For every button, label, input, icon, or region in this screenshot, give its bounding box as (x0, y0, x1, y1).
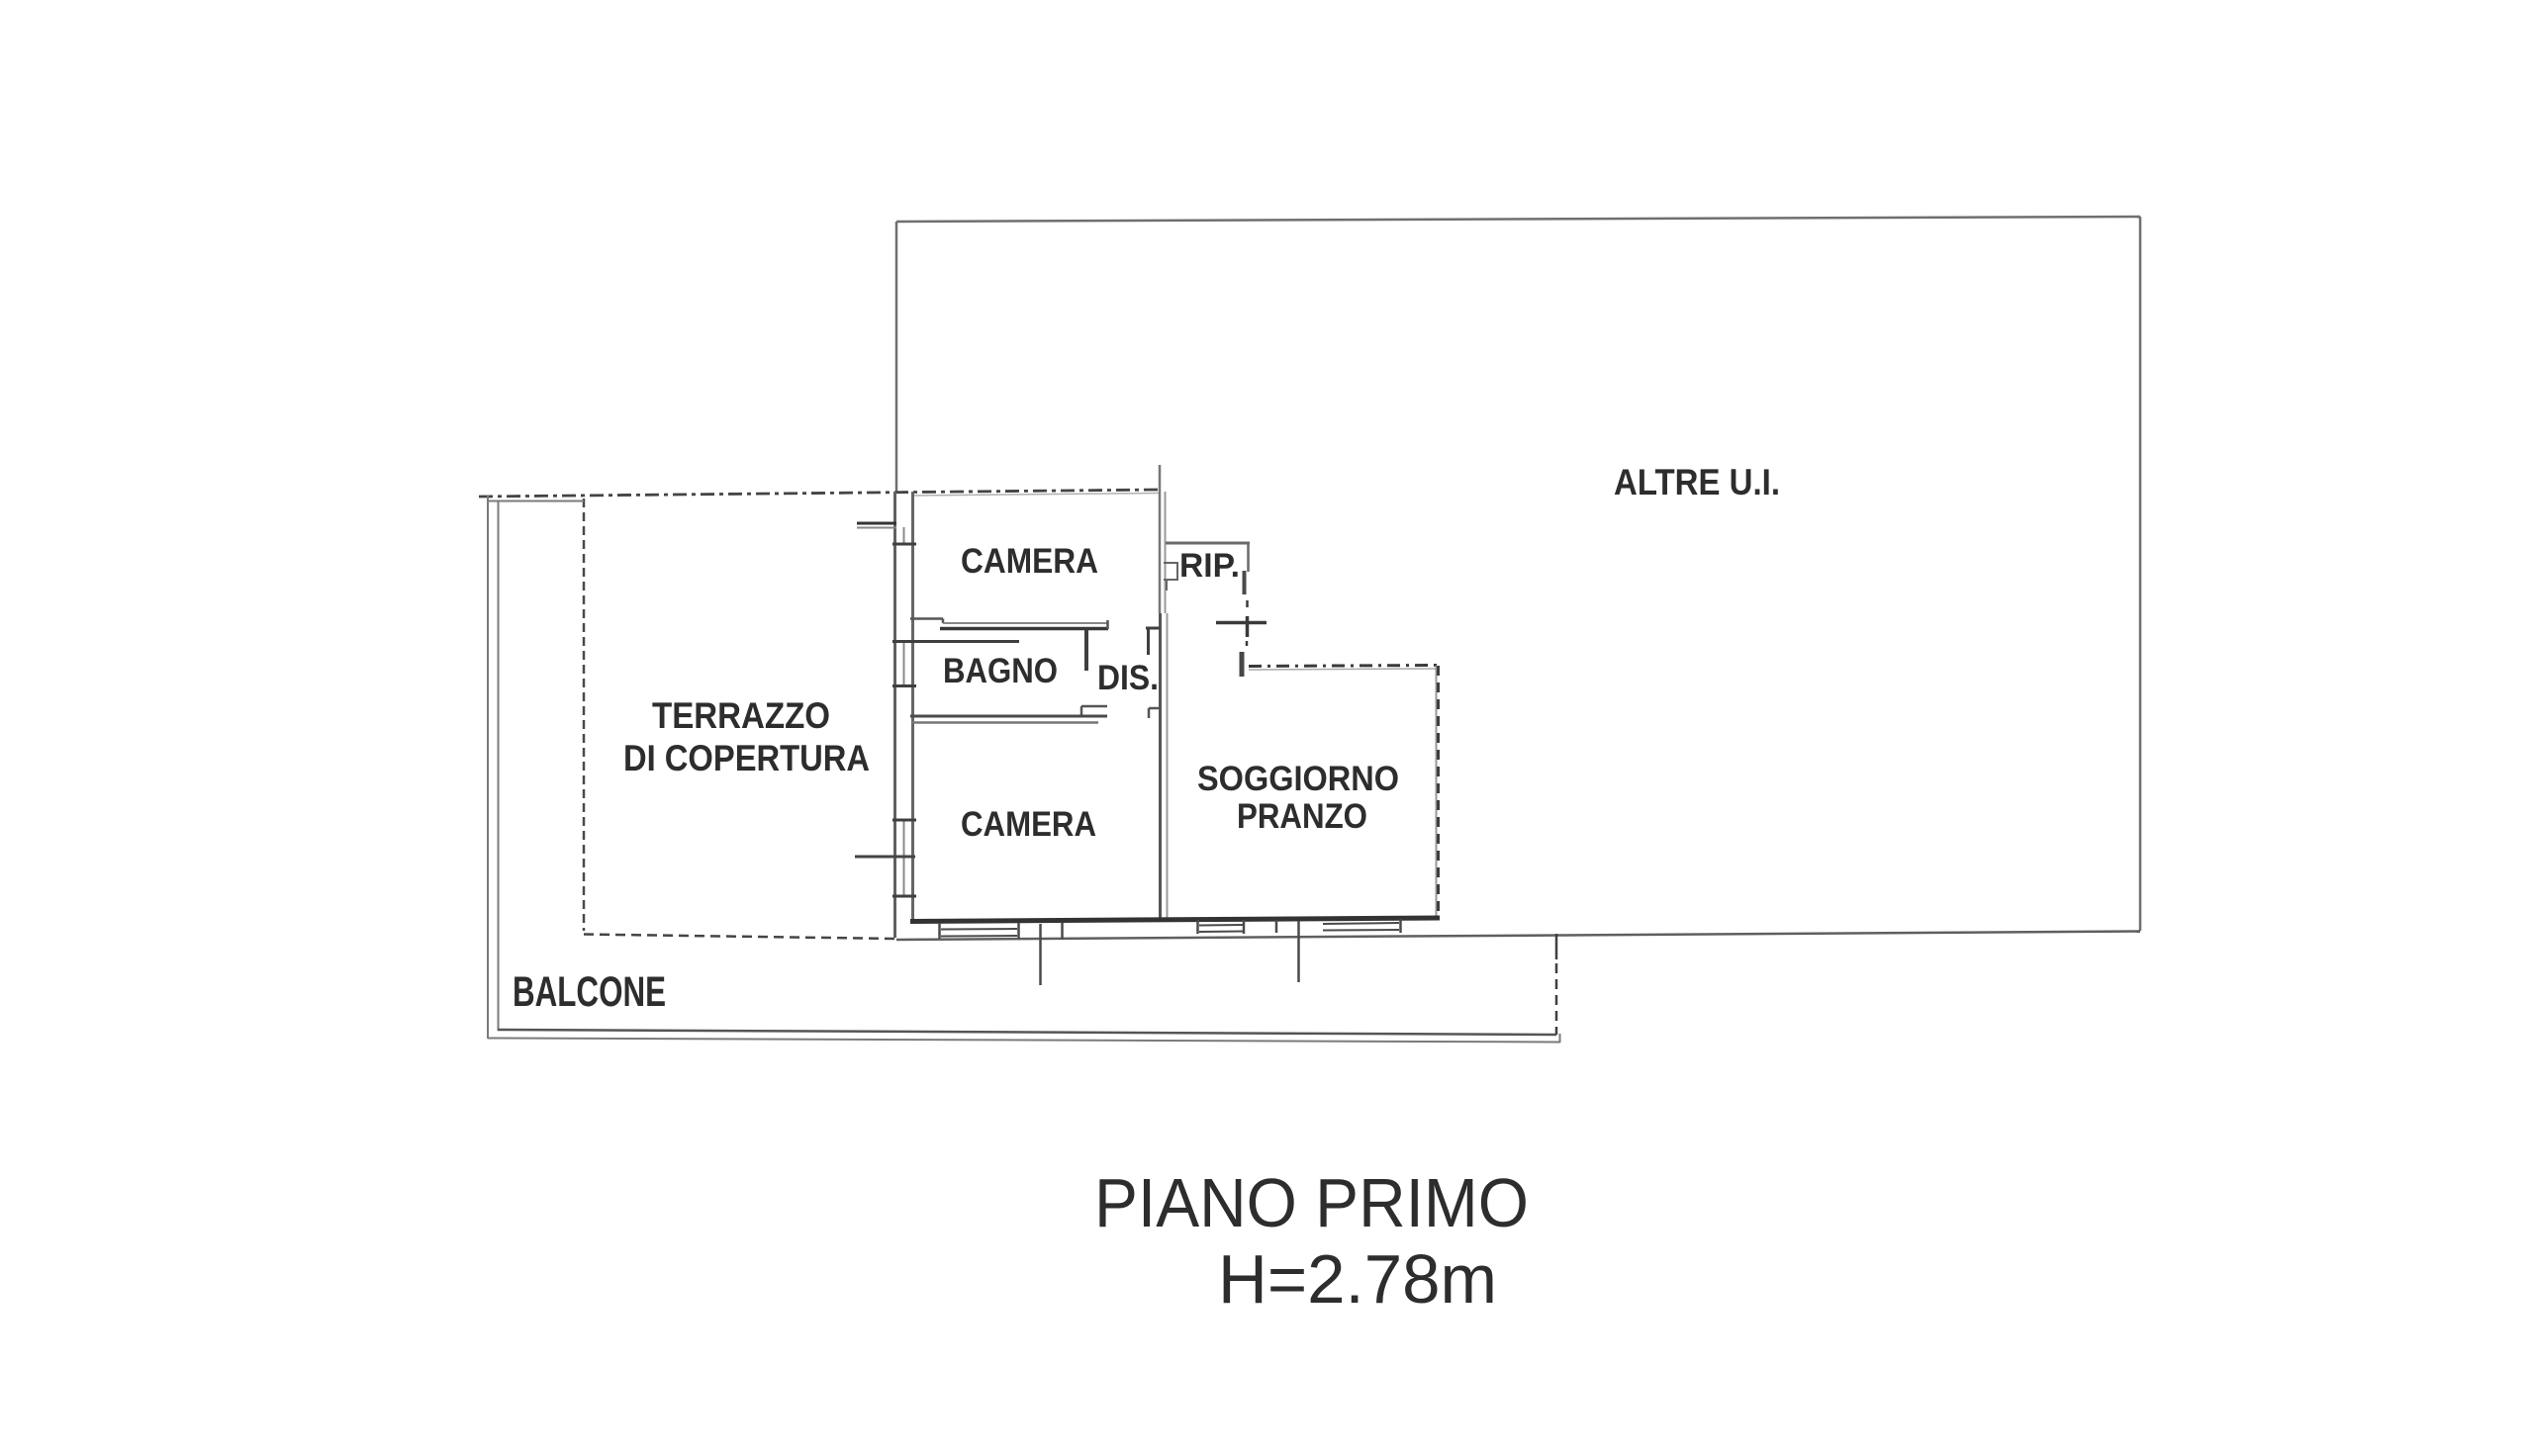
svg-text:SOGGIORNO: SOGGIORNO (1197, 760, 1399, 798)
svg-text:CAMERA: CAMERA (961, 542, 1098, 581)
svg-text:PRANZO: PRANZO (1237, 797, 1367, 836)
svg-text:PIANO PRIMO: PIANO PRIMO (1094, 1164, 1529, 1241)
svg-text:H=2.78m: H=2.78m (1218, 1240, 1497, 1318)
svg-text:ALTRE U.I.: ALTRE U.I. (1614, 462, 1780, 502)
svg-text:DIS.: DIS. (1097, 659, 1159, 697)
svg-text:BAGNO: BAGNO (943, 652, 1058, 690)
svg-text:TERRAZZO: TERRAZZO (652, 695, 830, 736)
svg-text:RIP.: RIP. (1179, 547, 1240, 585)
svg-text:BALCONE: BALCONE (513, 968, 666, 1016)
svg-text:CAMERA: CAMERA (961, 805, 1096, 844)
svg-text:DI COPERTURA: DI COPERTURA (623, 738, 870, 778)
